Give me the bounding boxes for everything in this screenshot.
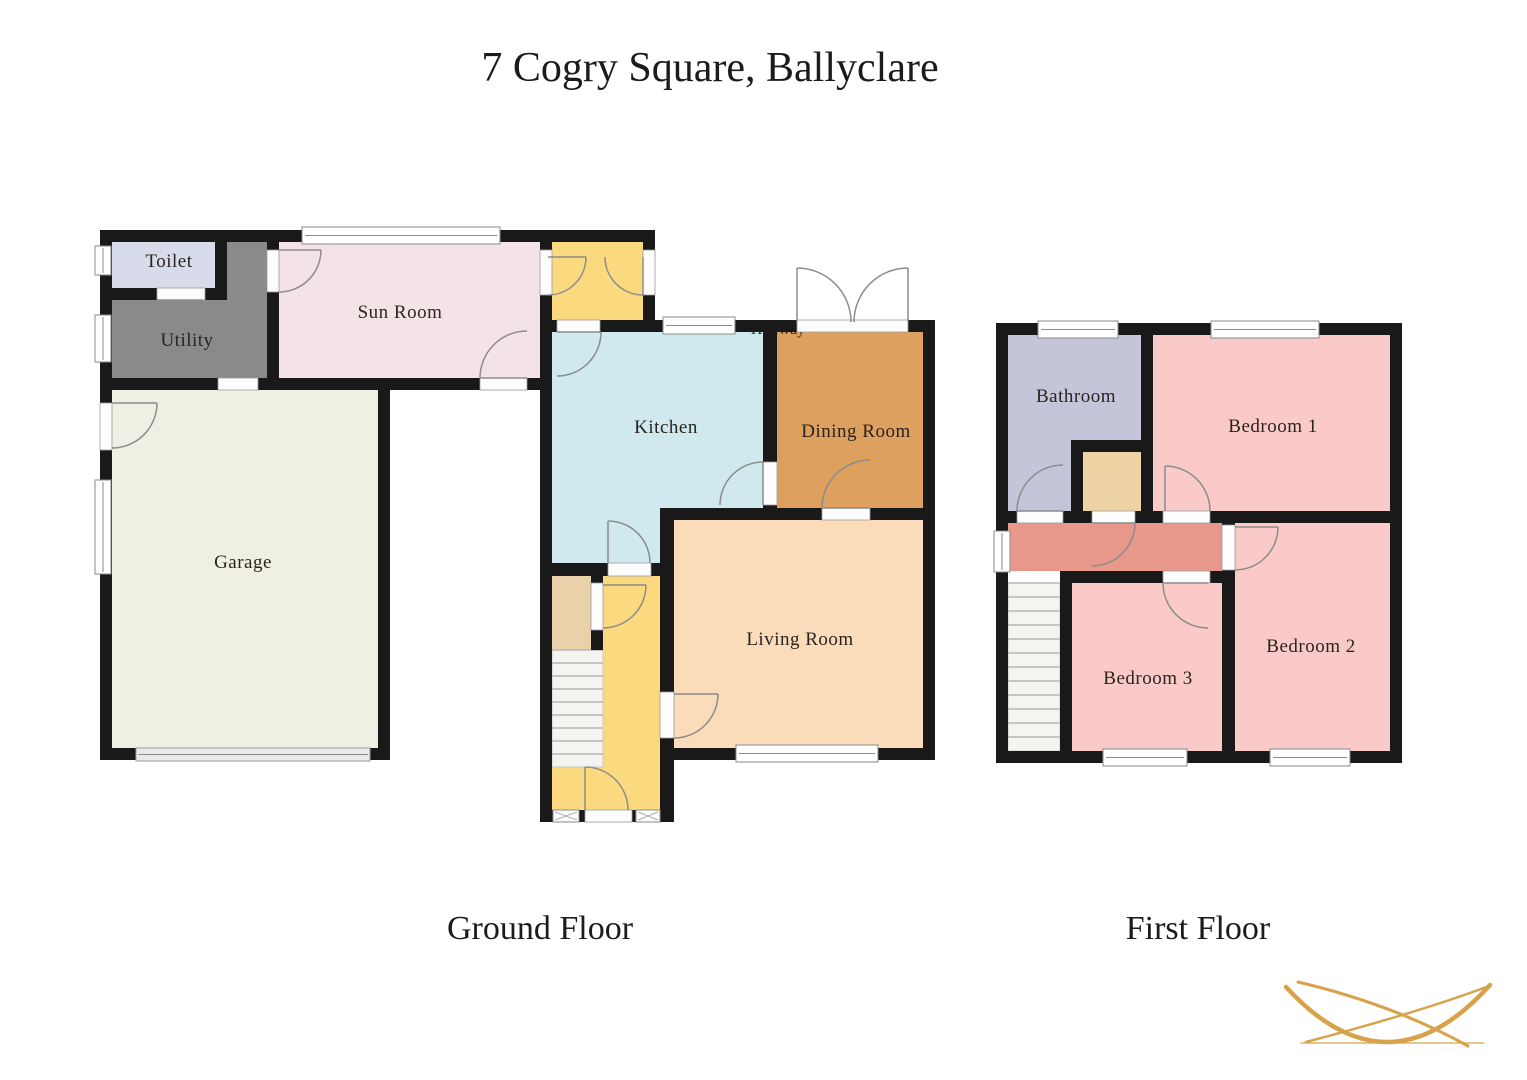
room-stairs-cupboard	[552, 576, 591, 650]
floorplan-page: 7 Cogry Square, Ballyclare Hallway	[0, 0, 1527, 1080]
front-door-sidelight	[636, 810, 660, 822]
room-label-utility: Utility	[160, 330, 213, 351]
room-label-garage: Garage	[214, 552, 272, 573]
ground-floor-caption: Ground Floor	[447, 910, 634, 947]
room-airing-cupboard	[1083, 452, 1141, 511]
first-floor-plan: Bathroom Bedroom 1 Bedroom 2 Bedroom 3	[994, 321, 1402, 766]
room-label-dining-room: Dining Room	[801, 421, 910, 442]
room-dining	[777, 332, 923, 508]
stairs-first	[1008, 583, 1060, 751]
room-label-living-room: Living Room	[746, 629, 853, 650]
room-label-kitchen: Kitchen	[634, 417, 698, 438]
ground-floor-plan: Hallway	[95, 227, 935, 822]
room-label-toilet: Toilet	[145, 251, 192, 272]
room-label-sun-room: Sun Room	[358, 302, 443, 323]
room-bedroom-3	[1072, 583, 1222, 751]
stairs-ground	[552, 650, 603, 767]
agency-logo	[1286, 982, 1490, 1046]
room-landing	[1008, 523, 1222, 571]
room-label-bedroom-2: Bedroom 2	[1266, 636, 1355, 657]
page-title: 7 Cogry Square, Ballyclare	[481, 45, 938, 91]
room-label-bedroom-3: Bedroom 3	[1103, 668, 1192, 689]
floorplan-svg: 7 Cogry Square, Ballyclare Hallway	[0, 0, 1527, 1080]
room-label-bedroom-1: Bedroom 1	[1228, 416, 1317, 437]
room-label-bathroom: Bathroom	[1036, 386, 1116, 407]
front-door-sidelight	[553, 810, 579, 822]
room-porch	[552, 242, 643, 320]
first-floor-caption: First Floor	[1126, 910, 1271, 947]
